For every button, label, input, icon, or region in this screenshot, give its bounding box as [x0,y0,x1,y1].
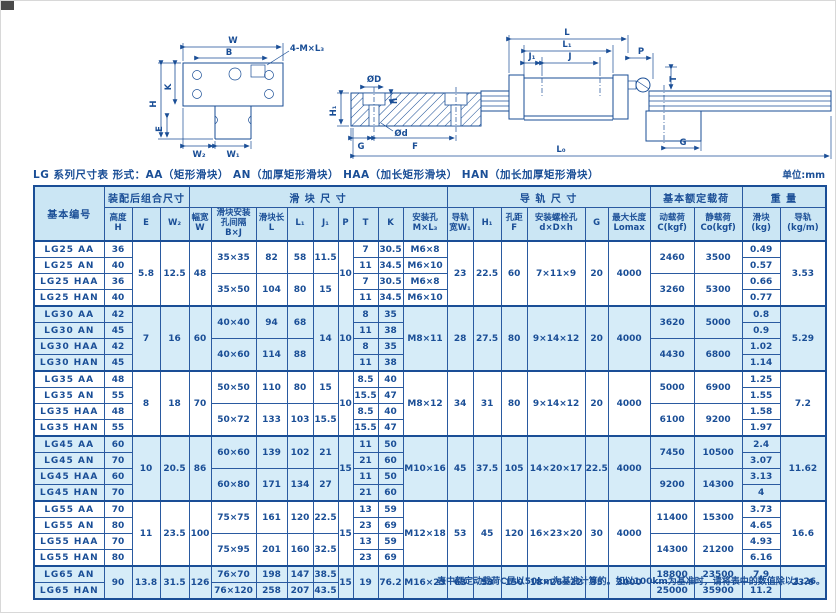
value-cell: 4430 [650,339,694,372]
column-header: T [353,208,378,242]
value-cell: 48 [104,404,132,420]
dim-label-t: T [669,76,679,82]
value-cell: 11 [353,436,378,453]
model-cell: LG25 AN [34,258,104,274]
value-cell: 40 [104,258,132,274]
value-cell: 23 [447,241,473,306]
header-block-group: 滑 块 尺 寸 [189,186,447,208]
value-cell: 30.5 [378,241,403,258]
value-cell: 70 [104,501,132,518]
value-cell: 36 [104,274,132,290]
value-cell: 80 [501,306,527,371]
dim-label-h1: H₁ [329,105,339,116]
value-cell: 21 [313,436,338,469]
value-cell: 7 [353,241,378,258]
model-cell: LG45 AN [34,453,104,469]
value-cell: 15 [313,371,338,404]
model-cell: LG45 HAN [34,485,104,502]
front-view: W B 4-M×L₃ H K E W₂ W₁ [149,36,324,160]
dim-label-dd: Ød [394,128,407,139]
value-cell: 60 [378,453,403,469]
value-cell: 5300 [694,274,742,307]
value-cell: 42 [104,306,132,323]
value-cell: 5.8 [132,241,160,306]
table-body: LG25 AA365.812.54835×35825811.510730.5M6… [34,241,826,599]
model-cell: LG25 HAA [34,274,104,290]
value-cell: 139 [256,436,287,469]
value-cell: 11 [353,469,378,485]
value-cell: 30.5 [378,274,403,290]
value-cell: 60×60 [211,436,256,469]
value-cell: 14×20×17 [527,436,585,501]
model-cell: LG30 HAN [34,355,104,372]
value-cell: 3.13 [742,469,780,485]
model-cell: LG35 AN [34,388,104,404]
value-cell: 160 [287,534,313,567]
value-cell: 50 [378,469,403,485]
value-cell: M6×8 [403,274,447,290]
value-cell: 20 [585,306,608,371]
dim-label-dD: ØD [367,74,381,85]
value-cell: 16 [160,306,189,371]
value-cell: 20 [585,371,608,436]
value-cell: 16×23×20 [527,501,585,566]
model-cell: LG55 AN [34,518,104,534]
value-cell: 4000 [608,241,650,306]
dim-label-l0: L₀ [556,145,565,155]
value-cell: 120 [287,501,313,534]
value-cell: 1.55 [742,388,780,404]
value-cell: 4.93 [742,534,780,550]
value-cell: 80 [104,518,132,534]
value-cell: 1.58 [742,404,780,420]
model-cell: LG30 HAA [34,339,104,355]
value-cell: M8×12 [403,371,447,436]
value-cell: 0.66 [742,274,780,290]
dim-label-l: L [564,28,570,38]
value-cell: 14 [313,306,338,371]
value-cell: 58 [287,241,313,274]
value-cell: 0.77 [742,290,780,307]
model-cell: LG55 HAN [34,550,104,567]
value-cell: M12×18 [403,501,447,566]
model-cell: LG45 HAA [34,469,104,485]
value-cell: 3500 [694,241,742,274]
model-cell: LG25 HAN [34,290,104,307]
footnote: 表中额定动载荷C是以50km为基准计算的。如以100km为基准时，请将表中的数值… [33,574,825,587]
value-cell: 80 [287,274,313,307]
value-cell: 22.5 [585,436,608,501]
value-cell: 22.5 [473,241,501,306]
dim-label-e: E [155,126,165,132]
value-cell: 15.5 [353,420,378,437]
value-cell: 171 [256,469,287,502]
value-cell: 40 [378,371,403,388]
value-cell: 6800 [694,339,742,372]
column-header: 孔距 F [501,208,527,242]
value-cell: 23 [353,518,378,534]
value-cell: 55 [104,388,132,404]
value-cell: 102 [287,436,313,469]
value-cell: 69 [378,518,403,534]
value-cell: 82 [256,241,287,274]
value-cell: 4000 [608,436,650,501]
value-cell: 48 [189,241,211,306]
dim-label-l1: L₁ [562,40,571,50]
column-header: 安装孔 M×L₃ [403,208,447,242]
dim-label-j: J [567,52,571,62]
value-cell: 12.5 [160,241,189,306]
value-cell: 34 [447,371,473,436]
column-header: 动载荷 C(kgf) [650,208,694,242]
value-cell: 40×40 [211,306,256,339]
value-cell: 6.16 [742,550,780,567]
column-header: 最大长度 Lomax [608,208,650,242]
value-cell: 3260 [650,274,694,307]
value-cell: 75×95 [211,534,256,567]
value-cell: 80 [501,371,527,436]
value-cell: 15 [338,436,353,501]
value-cell: 133 [256,404,287,437]
value-cell: 23 [353,550,378,567]
value-cell: 10 [338,306,353,371]
value-cell: 4000 [608,306,650,371]
value-cell: 60 [104,436,132,453]
value-cell: 4000 [608,371,650,436]
value-cell: 23.5 [160,501,189,566]
value-cell: 10500 [694,436,742,469]
value-cell: 80 [287,371,313,404]
value-cell: 11 [353,258,378,274]
value-cell: 15300 [694,501,742,534]
value-cell: 3.07 [742,453,780,469]
value-cell: 16.6 [780,501,826,566]
dim-label-screws: 4-M×L₃ [290,44,324,54]
value-cell: 42 [104,339,132,355]
value-cell: 8 [353,339,378,355]
value-cell: 69 [378,550,403,567]
value-cell: 7×11×9 [527,241,585,306]
value-cell: 0.8 [742,306,780,323]
value-cell: 2460 [650,241,694,274]
value-cell: 70 [104,485,132,502]
header-load-group: 基本额定载荷 [650,186,742,208]
header-model: 基本编号 [34,186,104,241]
value-cell: 5000 [694,306,742,339]
value-cell: 7450 [650,436,694,469]
value-cell: 8 [132,371,160,436]
value-cell: 0.57 [742,258,780,274]
value-cell: 47 [378,388,403,404]
header-assembly-group: 装配后组合尺寸 [104,186,189,208]
value-cell: 21 [353,485,378,502]
model-cell: LG35 AA [34,371,104,388]
model-cell: LG45 AA [34,436,104,453]
value-cell: 11 [353,290,378,307]
value-cell: 5000 [650,371,694,404]
value-cell: 6100 [650,404,694,437]
unit-label: 单位:mm [782,167,825,181]
model-cell: LG35 HAA [34,404,104,420]
value-cell: 40 [104,290,132,307]
value-cell: 28 [447,306,473,371]
value-cell: 50×72 [211,404,256,437]
value-cell: 5.29 [780,306,826,371]
value-cell: 59 [378,501,403,518]
dim-label-w1: W₁ [226,150,239,160]
value-cell: 104 [256,274,287,307]
value-cell: M6×8 [403,241,447,258]
value-cell: 15.5 [353,388,378,404]
value-cell: 6900 [694,371,742,404]
value-cell: 30 [585,501,608,566]
value-cell: 0.49 [742,241,780,258]
value-cell: 45 [104,355,132,372]
value-cell: 21200 [694,534,742,567]
value-cell: 45 [473,501,501,566]
dim-label-p: P [638,47,644,57]
value-cell: 60 [378,485,403,502]
value-cell: 134 [287,469,313,502]
dim-label-w: W [228,36,238,46]
value-cell: 1.14 [742,355,780,372]
header-rail-group: 导 轨 尺 寸 [447,186,650,208]
value-cell: 75×75 [211,501,256,534]
value-cell: 13 [353,534,378,550]
value-cell: 110 [256,371,287,404]
value-cell: 103 [287,404,313,437]
table-title-row: LG 系列尺寸表 形式：AA（矩形滑块） AN（加厚矩形滑块） HAA（加长矩形… [33,166,825,182]
model-cell: LG30 AA [34,306,104,323]
value-cell: 0.9 [742,323,780,339]
column-header: J₁ [313,208,338,242]
value-cell: 20 [585,241,608,306]
model-cell: LG30 AN [34,323,104,339]
column-header: W₂ [160,208,189,242]
value-cell: 35×35 [211,241,256,274]
value-cell: 3620 [650,306,694,339]
value-cell: 105 [501,436,527,501]
value-cell: 20.5 [160,436,189,501]
value-cell: 60 [501,241,527,306]
value-cell: 4.65 [742,518,780,534]
dim-label-j1: J₁ [528,52,536,62]
value-cell: 9200 [650,469,694,502]
dimension-table: 基本编号 装配后组合尺寸 滑 块 尺 寸 导 轨 尺 寸 基本额定载荷 重 量 … [33,185,827,600]
value-cell: 4000 [608,501,650,566]
value-cell: 32.5 [313,534,338,567]
header-weight-group: 重 量 [742,186,826,208]
value-cell: 40×60 [211,339,256,372]
column-header: E [132,208,160,242]
value-cell: 38 [378,323,403,339]
value-cell: 120 [501,501,527,566]
value-cell: 35×50 [211,274,256,307]
value-cell: 50×50 [211,371,256,404]
value-cell: 22.5 [313,501,338,534]
value-cell: 11 [132,501,160,566]
value-cell: 47 [378,420,403,437]
value-cell: 13 [353,501,378,518]
value-cell: 8 [353,306,378,323]
value-cell: 1.97 [742,420,780,437]
value-cell: 94 [256,306,287,339]
value-cell: 45 [447,436,473,501]
value-cell: 88 [287,339,313,372]
value-cell: 70 [104,453,132,469]
value-cell: M6×10 [403,258,447,274]
value-cell: 3.53 [780,241,826,306]
value-cell: 37.5 [473,436,501,501]
value-cell: 68 [287,306,313,339]
value-cell: 60 [104,469,132,485]
value-cell: 35 [378,306,403,323]
value-cell: 1.02 [742,339,780,355]
value-cell: 114 [256,339,287,372]
value-cell: 2.4 [742,436,780,453]
column-header: 导轨 宽W₁ [447,208,473,242]
value-cell: 100 [189,501,211,566]
value-cell: 11.5 [313,241,338,274]
dim-label-g: G [358,142,365,152]
column-header: 滑块长 L [256,208,287,242]
dim-label-g-side: G [680,138,687,148]
value-cell: 161 [256,501,287,534]
value-cell: 8.5 [353,371,378,388]
dim-label-depth: h [390,98,400,104]
value-cell: 10 [338,371,353,436]
value-cell: 15 [313,274,338,307]
value-cell: 70 [104,534,132,550]
value-cell: 11.62 [780,436,826,501]
column-header: P [338,208,353,242]
value-cell: 48 [104,371,132,388]
value-cell: 86 [189,436,211,501]
value-cell: 7 [132,306,160,371]
column-header: K [378,208,403,242]
value-cell: 18 [160,371,189,436]
dim-label-w2: W₂ [192,150,205,160]
model-cell: LG55 HAA [34,534,104,550]
value-cell: 31 [473,371,501,436]
value-cell: 14300 [694,469,742,502]
value-cell: 8.5 [353,404,378,420]
model-cell: LG55 AA [34,501,104,518]
column-header: 导轨 (kg/m) [780,208,826,242]
column-header: 高度 H [104,208,132,242]
value-cell: 60 [189,306,211,371]
column-header: 幅宽 W [189,208,211,242]
value-cell: 53 [447,501,473,566]
value-cell: 40 [378,404,403,420]
value-cell: 38 [378,355,403,372]
value-cell: 11 [353,323,378,339]
table-title: LG 系列尺寸表 形式：AA（矩形滑块） AN（加厚矩形滑块） HAA（加长矩形… [33,167,599,182]
value-cell: 15.5 [313,404,338,437]
value-cell: 7 [353,274,378,290]
column-header: H₁ [473,208,501,242]
model-cell: LG35 HAN [34,420,104,437]
value-cell: M6×10 [403,290,447,307]
column-header: 滑块 (kg) [742,208,780,242]
value-cell: 9200 [694,404,742,437]
value-cell: 27 [313,469,338,502]
dim-label-b: B [226,48,232,58]
model-cell: LG25 AA [34,241,104,258]
dim-label-k: K [164,83,174,90]
value-cell: 9×14×12 [527,371,585,436]
side-view: L L₁ J₁ J P T G [481,28,831,151]
value-cell: 60×80 [211,469,256,502]
value-cell: 80 [104,550,132,567]
column-header: 静载荷 Co(kgf) [694,208,742,242]
value-cell: M10×16 [403,436,447,501]
value-cell: 1.25 [742,371,780,388]
value-cell: 21 [353,453,378,469]
value-cell: 34.5 [378,258,403,274]
value-cell: M8×11 [403,306,447,371]
dim-label-h: H [149,100,159,107]
value-cell: 45 [104,323,132,339]
column-header: 安装螺栓孔 d×D×h [527,208,585,242]
value-cell: 10 [132,436,160,501]
technical-drawings: W B 4-M×L₃ H K E W₂ W₁ [1,1,836,165]
value-cell: 9×14×12 [527,306,585,371]
value-cell: 55 [104,420,132,437]
dim-label-f: F [412,142,418,152]
column-header: L₁ [287,208,313,242]
value-cell: 59 [378,534,403,550]
value-cell: 35 [378,339,403,355]
column-header: 滑块安装 孔间隔 B×J [211,208,256,242]
value-cell: 36 [104,241,132,258]
value-cell: 14300 [650,534,694,567]
value-cell: 4 [742,485,780,502]
value-cell: 70 [189,371,211,436]
catalog-page: W B 4-M×L₃ H K E W₂ W₁ [0,0,836,613]
value-cell: 3.73 [742,501,780,518]
column-header: G [585,208,608,242]
value-cell: 201 [256,534,287,567]
value-cell: 11400 [650,501,694,534]
value-cell: 15 [338,501,353,566]
value-cell: 11 [353,355,378,372]
value-cell: 34.5 [378,290,403,307]
value-cell: 27.5 [473,306,501,371]
value-cell: 10 [338,241,353,306]
value-cell: 7.2 [780,371,826,436]
value-cell: 50 [378,436,403,453]
